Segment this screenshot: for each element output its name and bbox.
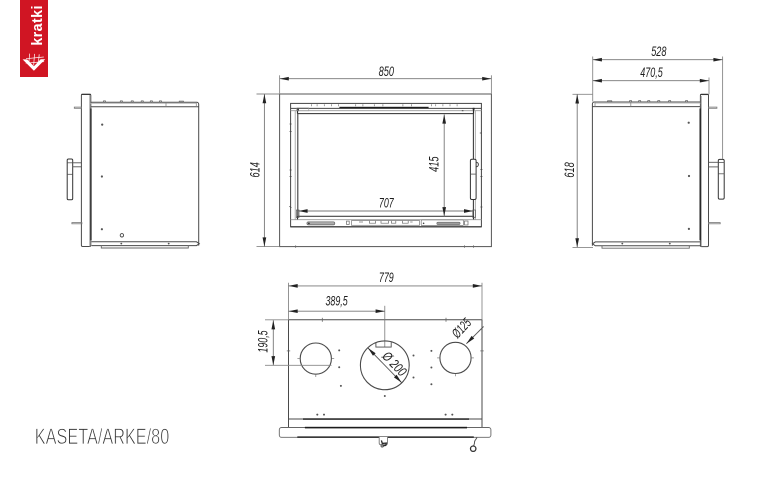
svg-text:KASETA/ARKE/80: KASETA/ARKE/80 [35,424,170,449]
svg-text:kratki: kratki [30,5,46,46]
svg-text:779: 779 [379,270,394,285]
svg-text:470,5: 470,5 [640,65,663,80]
svg-text:190,5: 190,5 [256,330,271,353]
svg-text:415: 415 [426,156,441,172]
svg-text:618: 618 [562,162,577,178]
svg-text:389,5: 389,5 [326,294,349,309]
svg-text:614: 614 [248,162,263,177]
svg-text:707: 707 [379,195,394,210]
svg-text:Ø125: Ø125 [448,315,474,341]
svg-text:850: 850 [379,64,395,79]
svg-text:528: 528 [651,44,667,59]
